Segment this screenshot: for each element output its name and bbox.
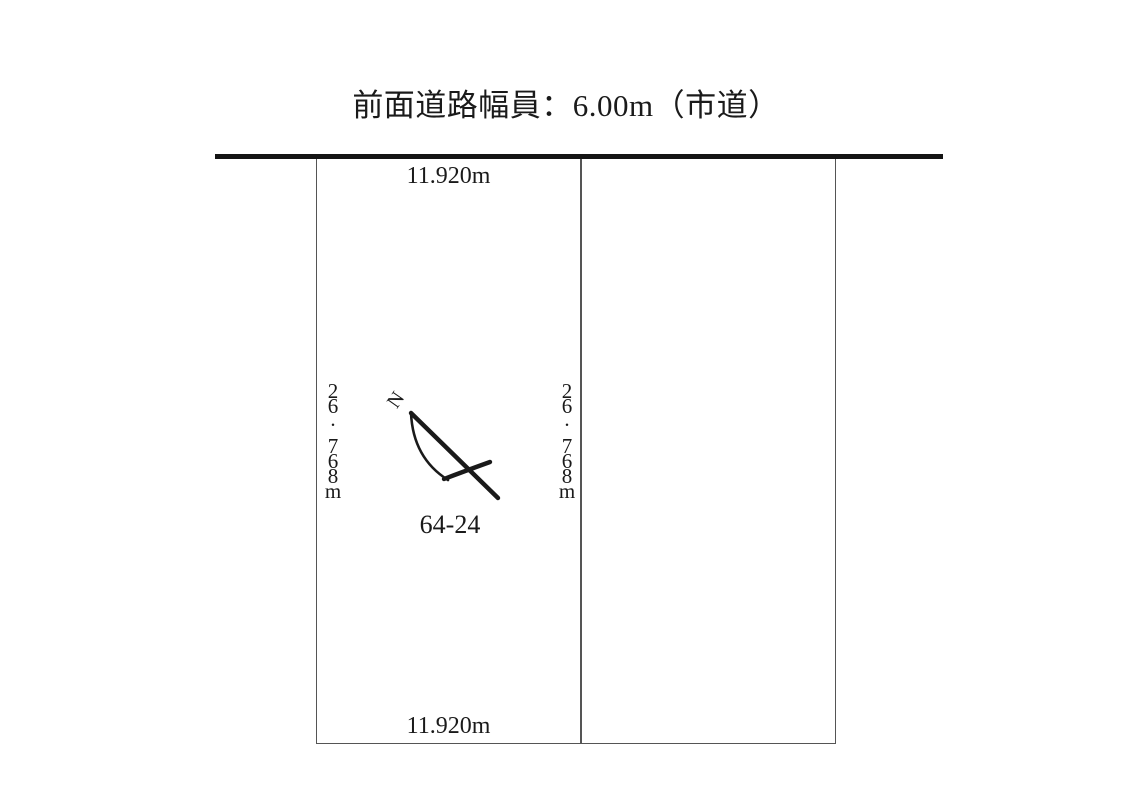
front-road-width-title: 前面道路幅員：6.00m（市道） — [0, 88, 1132, 124]
north-arrow-icon — [385, 395, 505, 510]
dimension-right: 26.768m — [557, 384, 577, 499]
parcel-divider-line — [580, 159, 582, 743]
dimension-top: 11.920m — [316, 163, 581, 189]
site-plan-diagram: 前面道路幅員：6.00m（市道） 11.920m 11.920m 26.768m… — [0, 0, 1132, 800]
parcel-number: 64-24 — [316, 511, 584, 539]
dimension-left: 26.768m — [323, 384, 343, 499]
north-arrow-crossbar — [444, 462, 490, 479]
dimension-bottom: 11.920m — [316, 713, 581, 739]
